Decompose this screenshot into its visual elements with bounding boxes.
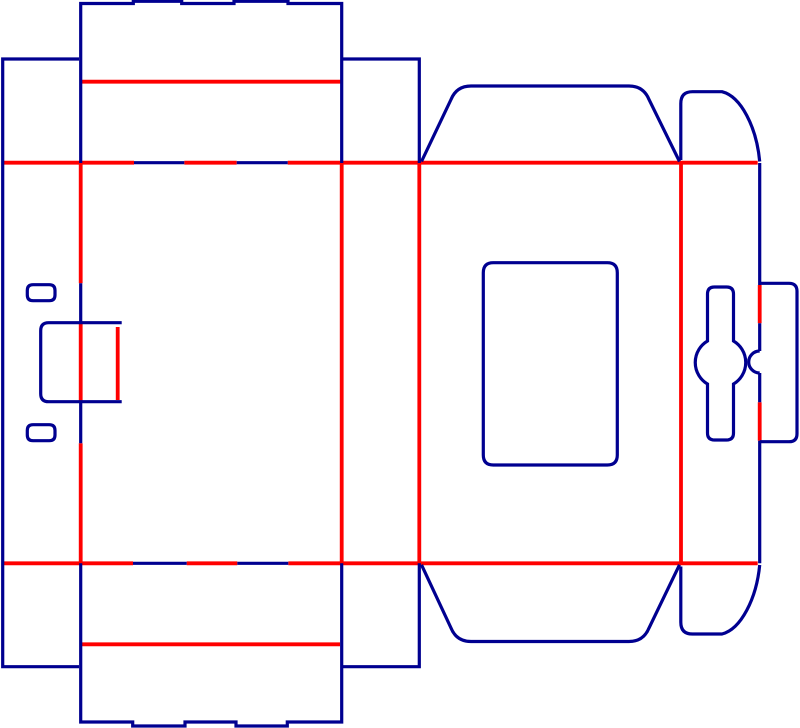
lock-flap-outline [760, 283, 797, 441]
bottom-rounded-flap-outline [681, 565, 760, 634]
bottom-dust-flap-outline [422, 565, 680, 642]
window-outline [483, 263, 617, 465]
top-right-strip-outline [342, 59, 420, 163]
top-dust-flap-outline [422, 86, 680, 162]
bottom-right-strip-outline [342, 563, 420, 666]
slot-top-outline [27, 285, 55, 301]
thumb-notch-cut [749, 351, 760, 373]
dieline-page [0, 0, 800, 728]
top-rounded-flap-outline [681, 92, 760, 162]
lock-tab-outline [695, 287, 745, 440]
dieline-svg [0, 0, 800, 728]
slot-bottom-outline [27, 425, 55, 441]
